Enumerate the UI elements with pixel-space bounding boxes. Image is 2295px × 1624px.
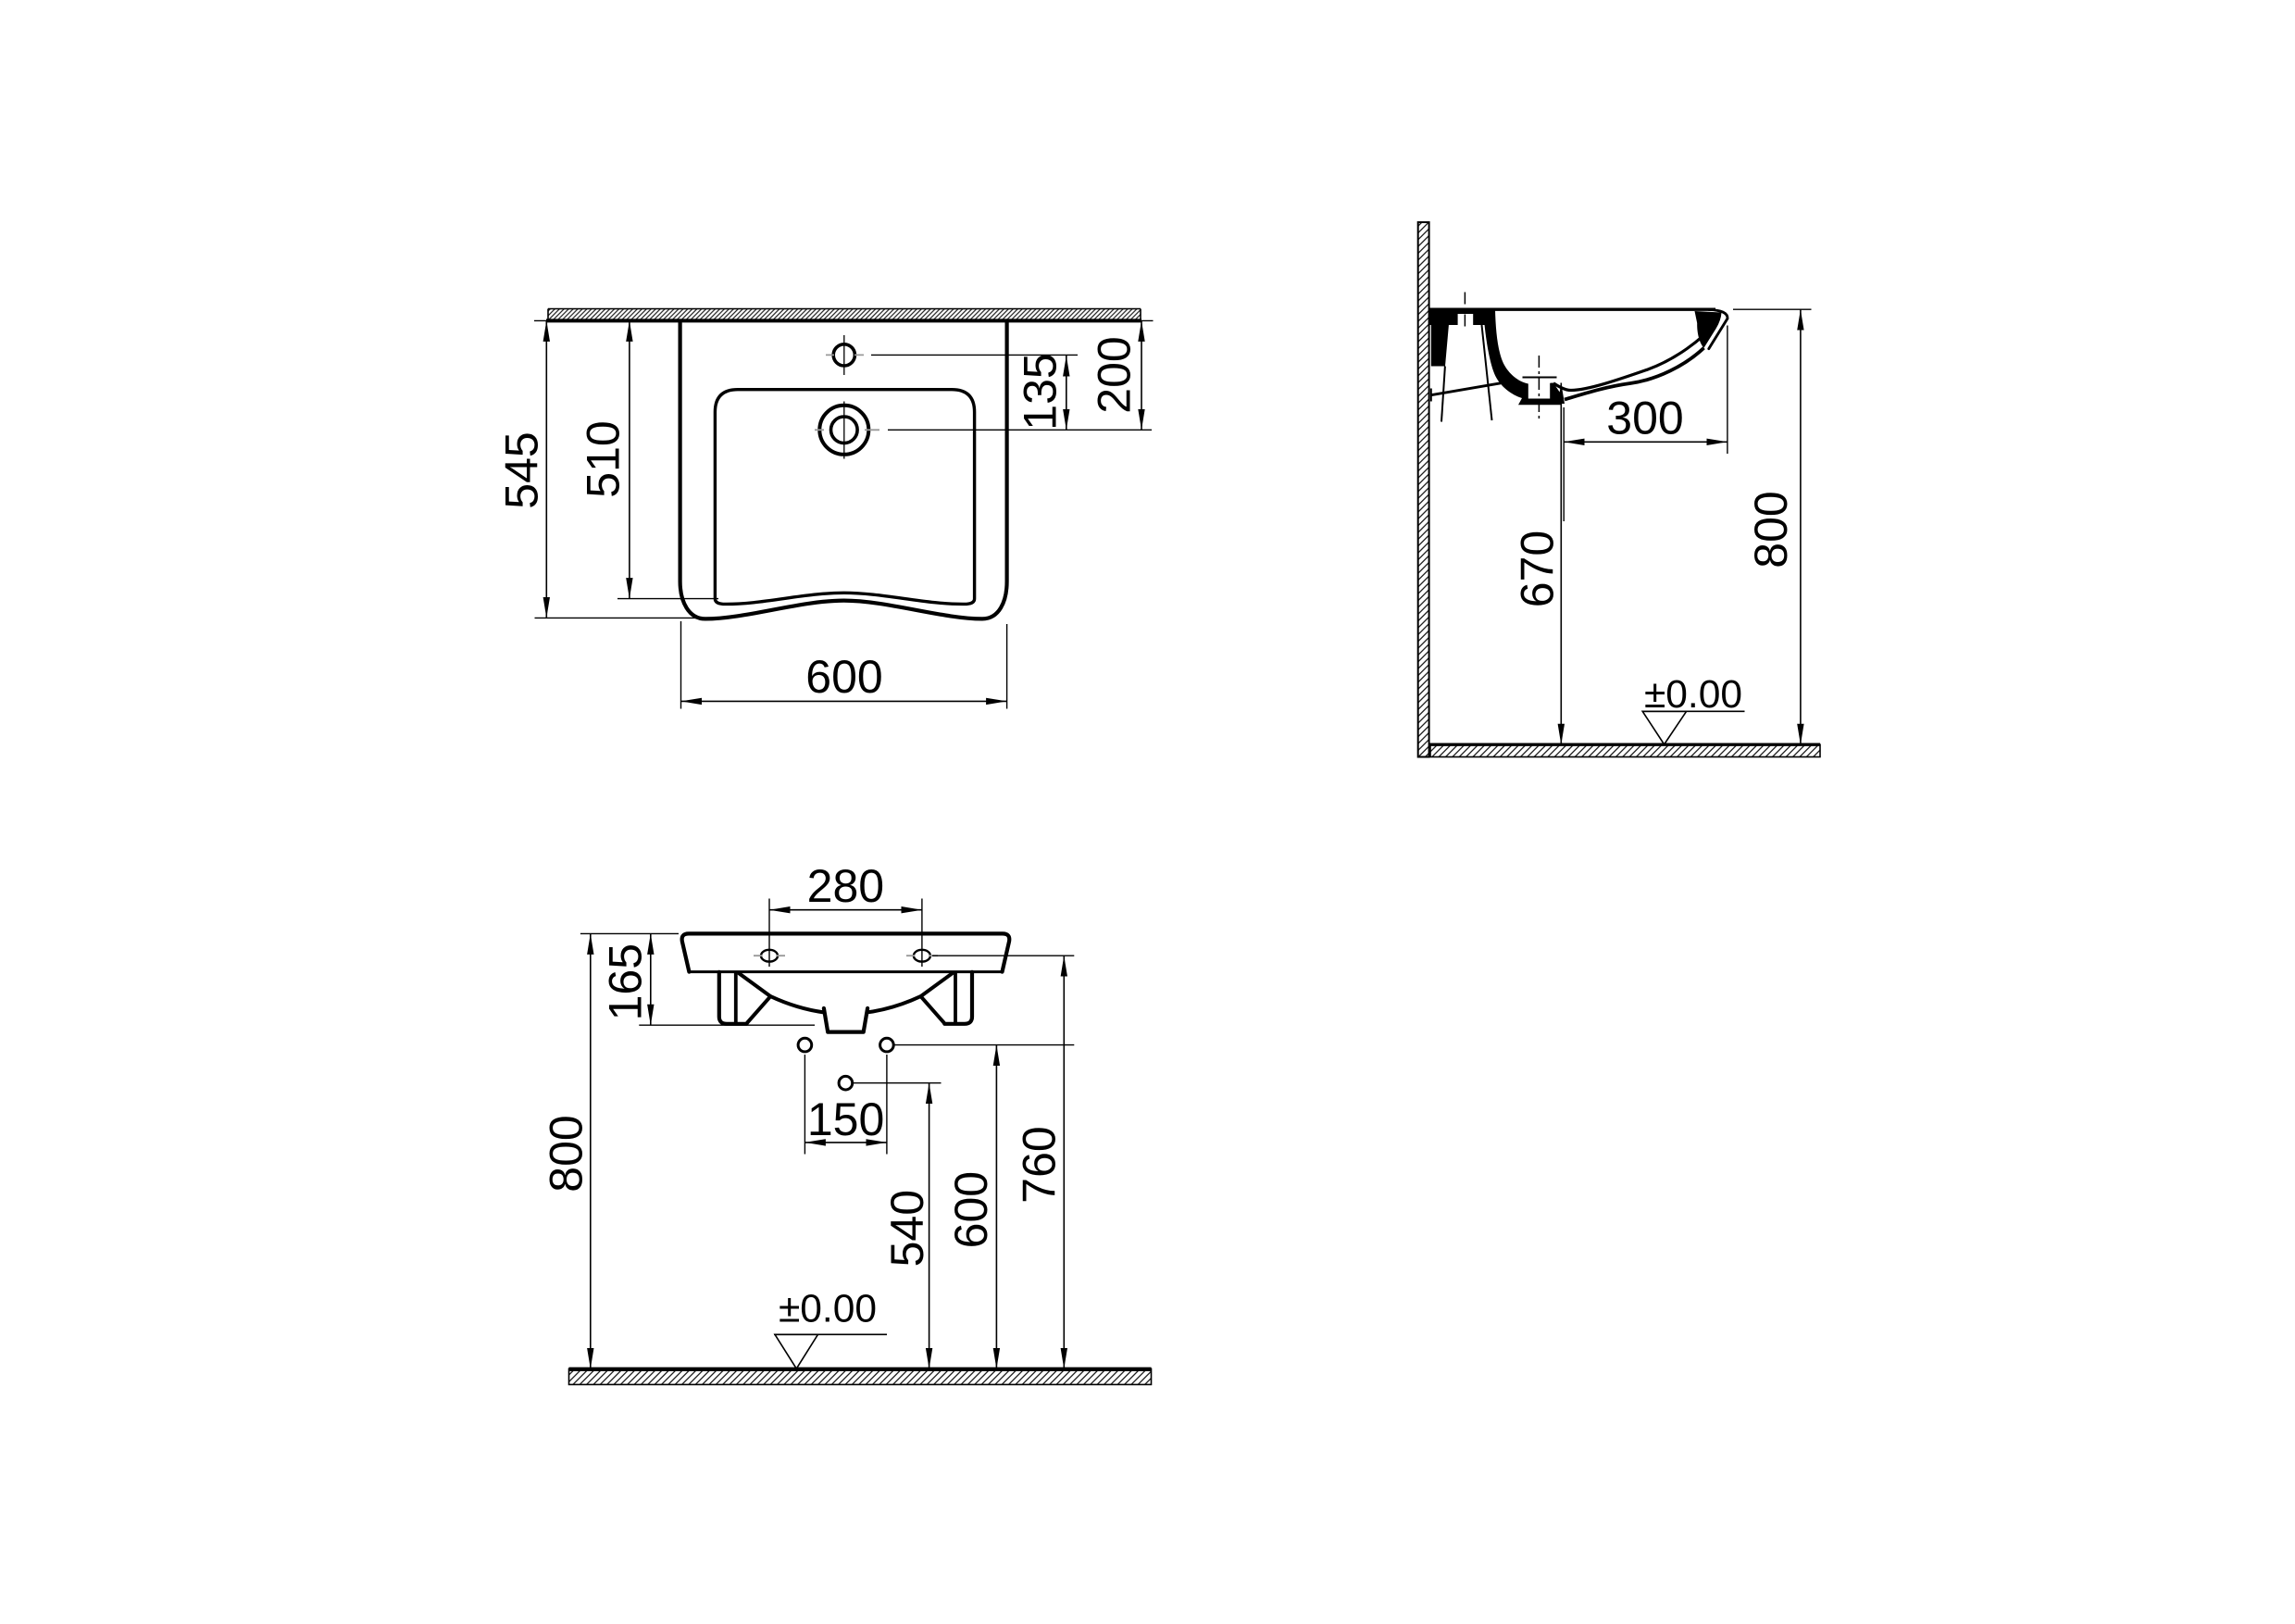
svg-text:±0.00: ±0.00 [779,1288,877,1331]
svg-text:165: 165 [600,943,652,1020]
svg-text:510: 510 [578,420,630,497]
svg-text:300: 300 [1606,392,1683,443]
svg-text:600: 600 [805,651,882,703]
svg-text:670: 670 [1512,531,1564,607]
svg-text:540: 540 [881,1190,933,1267]
svg-text:±0.00: ±0.00 [1644,673,1742,717]
svg-text:760: 760 [1014,1126,1066,1203]
svg-text:600: 600 [945,1171,997,1248]
svg-text:280: 280 [807,860,884,912]
svg-text:545: 545 [496,431,548,508]
svg-text:150: 150 [807,1093,884,1145]
svg-text:135: 135 [1015,353,1066,430]
svg-text:800: 800 [541,1115,592,1192]
svg-text:200: 200 [1089,336,1141,413]
svg-text:800: 800 [1745,491,1797,568]
